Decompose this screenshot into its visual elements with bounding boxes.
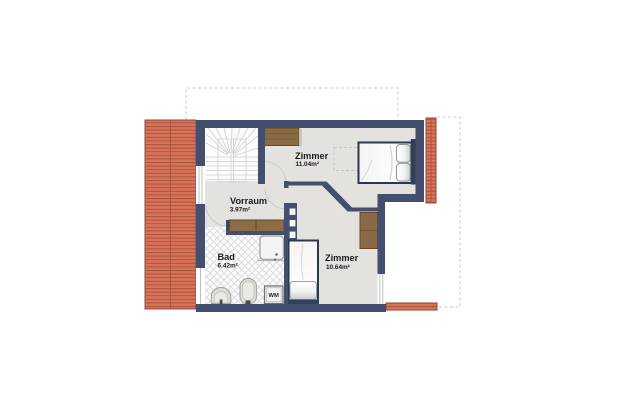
svg-text:Bad: Bad [218, 252, 235, 262]
svg-text:Zimmer: Zimmer [295, 151, 329, 161]
svg-text:Vorraum: Vorraum [230, 196, 267, 206]
svg-text:6.42m²: 6.42m² [218, 262, 238, 269]
svg-text:10.64m²: 10.64m² [326, 264, 350, 271]
svg-text:3.97m²: 3.97m² [230, 207, 250, 214]
svg-text:Zimmer: Zimmer [325, 253, 359, 263]
svg-text:11.04m²: 11.04m² [296, 161, 319, 168]
svg-text:WM: WM [269, 293, 279, 299]
